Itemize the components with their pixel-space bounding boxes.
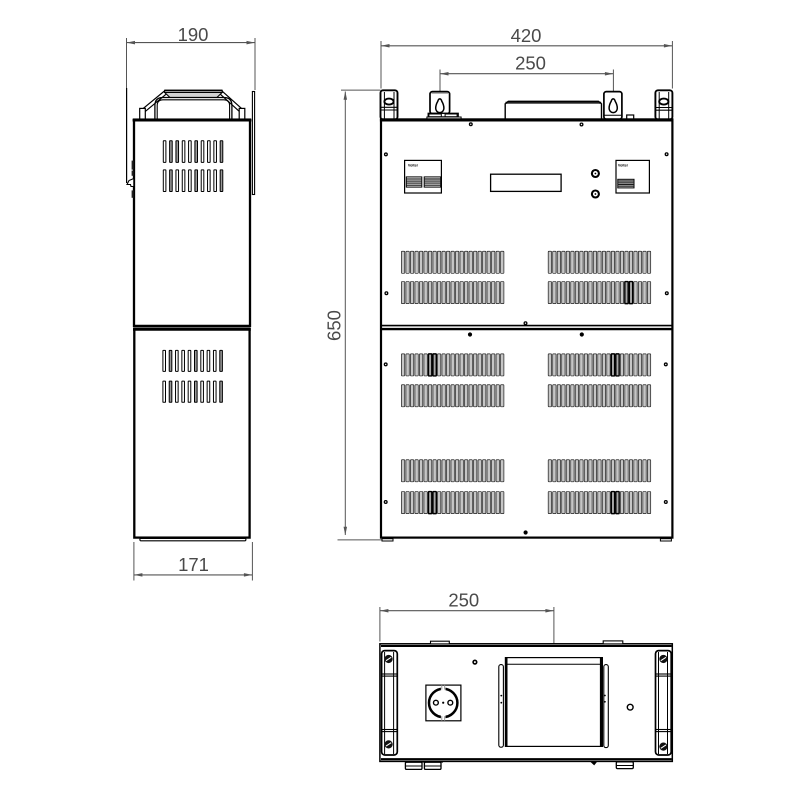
svg-text:190: 190 bbox=[178, 24, 209, 45]
svg-text:171: 171 bbox=[178, 554, 209, 575]
svg-text:Volter: Volter bbox=[618, 163, 629, 167]
svg-text:250: 250 bbox=[448, 589, 479, 610]
svg-text:250: 250 bbox=[515, 52, 546, 73]
svg-text:420: 420 bbox=[511, 25, 542, 46]
svg-text:Volter: Volter bbox=[408, 163, 419, 167]
svg-text:650: 650 bbox=[324, 310, 345, 341]
